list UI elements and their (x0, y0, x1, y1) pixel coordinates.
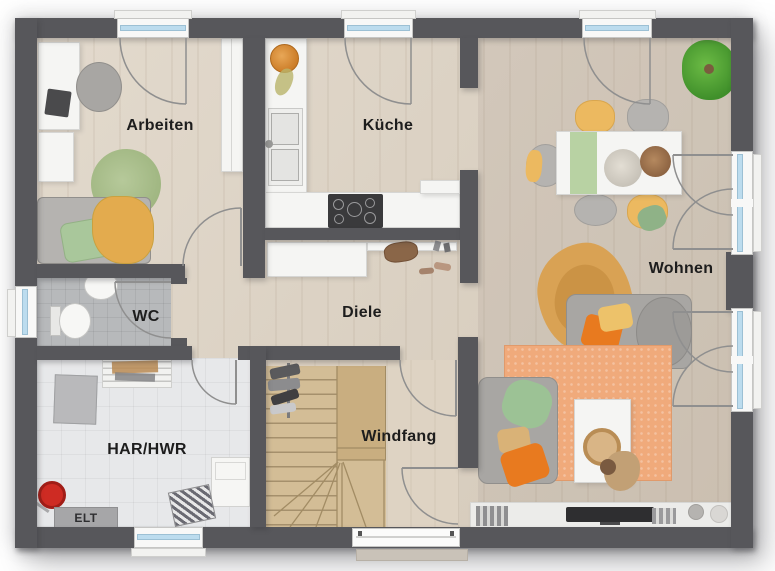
terrace-door-upper-mullion (731, 199, 753, 207)
wall-windfang-top (266, 346, 400, 360)
entrance-door-line (356, 536, 456, 538)
window-glass-wohnen (585, 25, 649, 31)
desk-drawer-unit (38, 132, 74, 182)
entrance-door-handle-right (450, 531, 454, 536)
table-runner (570, 132, 597, 194)
plant-vase (600, 459, 616, 475)
room-label-wohnen: Wohnen (649, 260, 714, 278)
toilet (59, 303, 91, 339)
elt-panel: ELT (54, 507, 118, 528)
sink-basin-1 (271, 113, 299, 145)
window-glass-har (137, 534, 200, 540)
terrace-door-lower-sill (753, 311, 762, 409)
wall-diele-wohnen-upper (460, 170, 478, 283)
staircase-winders (337, 460, 386, 527)
window-sill-har (131, 548, 206, 557)
desk (38, 42, 80, 130)
laundry-on-rack-2 (115, 372, 155, 381)
room-label-arbeiten: Arbeiten (126, 117, 193, 135)
washing-machine (211, 457, 250, 507)
terrace-door-upper-sill (753, 154, 762, 252)
cooktop (328, 194, 383, 228)
window-glass-kueche (347, 25, 410, 31)
decor-plate (710, 505, 728, 523)
wall-kueche-bottom (265, 228, 460, 240)
window-glass-arbeiten (120, 25, 186, 31)
wall-har-top (37, 346, 192, 360)
wall-kueche-left (243, 38, 265, 278)
wall-har-stub (238, 346, 250, 360)
dried-flowers (604, 149, 642, 187)
room-label-diele: Diele (342, 304, 382, 322)
decor-vase (688, 504, 704, 520)
books-right (652, 508, 676, 524)
wall-wc-stub-top (171, 278, 187, 284)
elt-label: ELT (74, 511, 97, 525)
flower-bowl (640, 146, 671, 177)
room-label-har-hwr: HAR/HWR (107, 441, 186, 459)
wall-exterior-left (15, 18, 37, 548)
wall-kueche-right-upper (460, 38, 478, 88)
tv (566, 507, 654, 522)
terrace-door-lower-mullion (731, 356, 753, 364)
wall-windfang-wohnen (458, 337, 478, 468)
floor-plan: ELT (0, 0, 775, 571)
dining-chair-gray-bottom (574, 194, 617, 226)
vacuum-cleaner (38, 481, 66, 509)
wall-wc-stub-bottom (171, 338, 187, 346)
office-chair (76, 62, 122, 112)
room-label-wc: WC (132, 308, 159, 326)
doormat (356, 549, 468, 561)
window-glass-wc (22, 289, 28, 335)
wall-arbeiten-bottom (37, 264, 185, 278)
palm-plant-trunk (704, 64, 714, 74)
dining-chair-yellow-top (575, 100, 615, 134)
blanket-yellow (92, 196, 154, 264)
faucet (265, 140, 273, 148)
dining-chair-gray-top (627, 99, 669, 135)
wardrobe (221, 38, 243, 172)
utility-box (53, 374, 98, 424)
entrance-door-handle-left (358, 531, 362, 536)
room-label-kueche: Küche (363, 117, 413, 135)
books-left (476, 506, 508, 526)
sideboard (267, 242, 367, 277)
kitchen-counter-end (420, 180, 460, 194)
wall-har-windfang (250, 346, 266, 527)
wall-pier-terrace-doors (726, 252, 753, 310)
wardrobe-door-line (231, 38, 232, 172)
sink-basin-2 (271, 149, 299, 181)
tv-stand (600, 522, 620, 525)
monitor (44, 88, 71, 117)
decor-bottle-2 (443, 243, 450, 253)
room-label-windfang: Windfang (361, 428, 436, 446)
